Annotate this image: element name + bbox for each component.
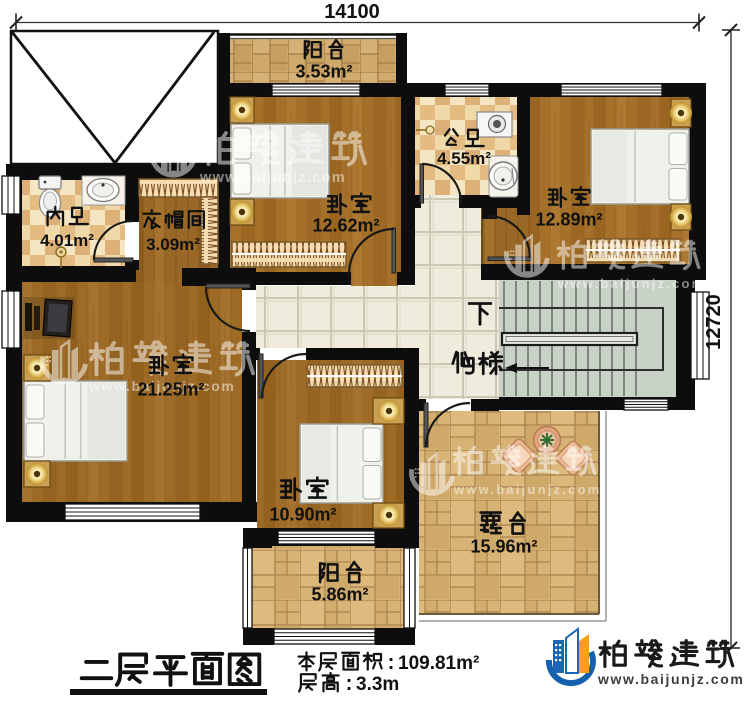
svg-text::: : (385, 653, 397, 676)
svg-text:www.baijunjz.com: www.baijunjz.com (597, 671, 744, 687)
svg-text:3.09m²: 3.09m² (146, 235, 200, 254)
svg-text:3.53m²: 3.53m² (295, 61, 352, 81)
svg-text:www.baijunjz.com: www.baijunjz.com (199, 170, 346, 186)
svg-text:14100: 14100 (324, 1, 380, 23)
svg-text:www.baijunjz.com: www.baijunjz.com (557, 276, 705, 291)
svg-text:3.3m: 3.3m (356, 674, 399, 695)
svg-text:21.25m²: 21.25m² (137, 379, 204, 399)
svg-text:www.baijunjz.com: www.baijunjz.com (453, 482, 601, 497)
svg-text:109.81m²: 109.81m² (398, 653, 479, 674)
svg-text:4.01m²: 4.01m² (40, 231, 94, 250)
svg-text:5.86m²: 5.86m² (311, 584, 368, 604)
svg-text:12720: 12720 (703, 294, 725, 350)
svg-text:4.55m²: 4.55m² (437, 149, 491, 168)
svg-text:12.62m²: 12.62m² (312, 215, 379, 235)
svg-text:12.89m²: 12.89m² (535, 209, 602, 229)
svg-text:10.90m²: 10.90m² (269, 504, 336, 524)
svg-text::: : (343, 674, 355, 697)
svg-text:15.96m²: 15.96m² (470, 536, 537, 556)
